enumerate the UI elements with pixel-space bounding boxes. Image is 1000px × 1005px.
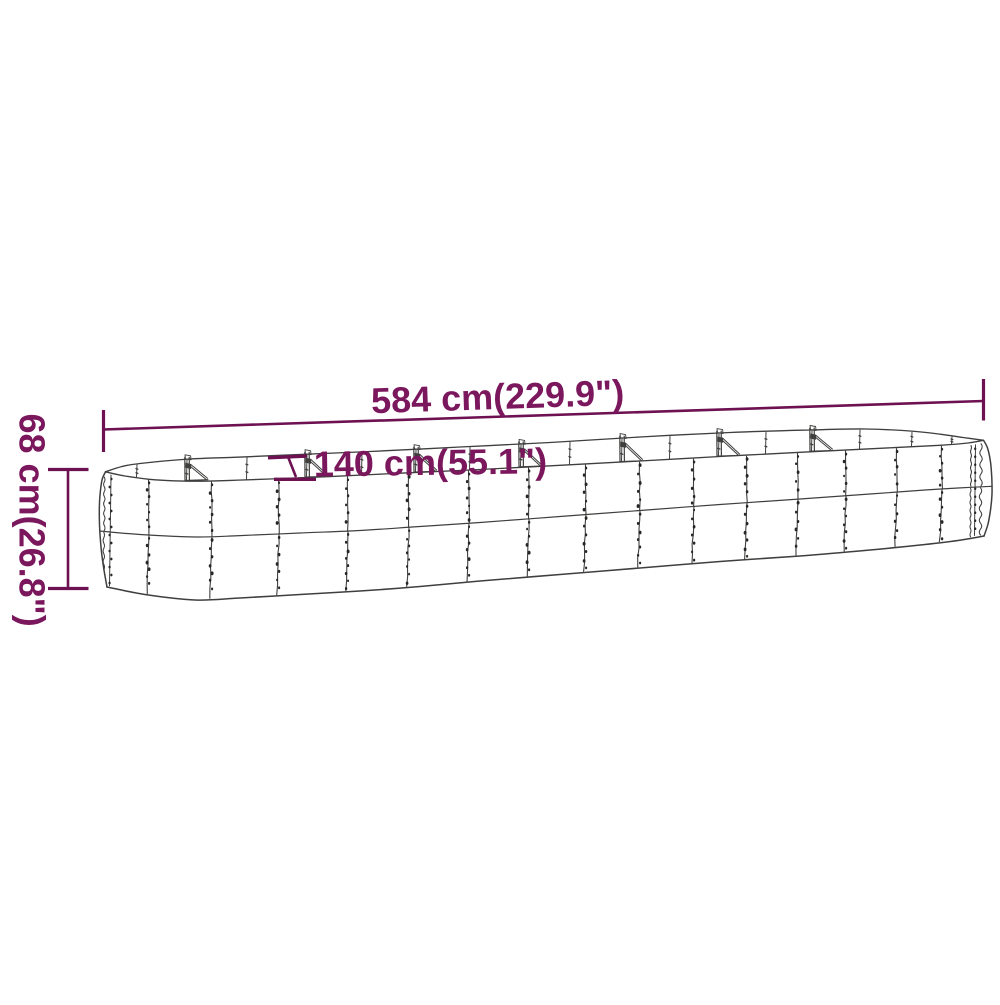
- svg-text:140 cm(55.1"): 140 cm(55.1"): [314, 440, 548, 484]
- svg-text:68 cm(26.8"): 68 cm(26.8"): [12, 414, 53, 627]
- svg-text:584 cm(229.9"): 584 cm(229.9"): [370, 372, 624, 421]
